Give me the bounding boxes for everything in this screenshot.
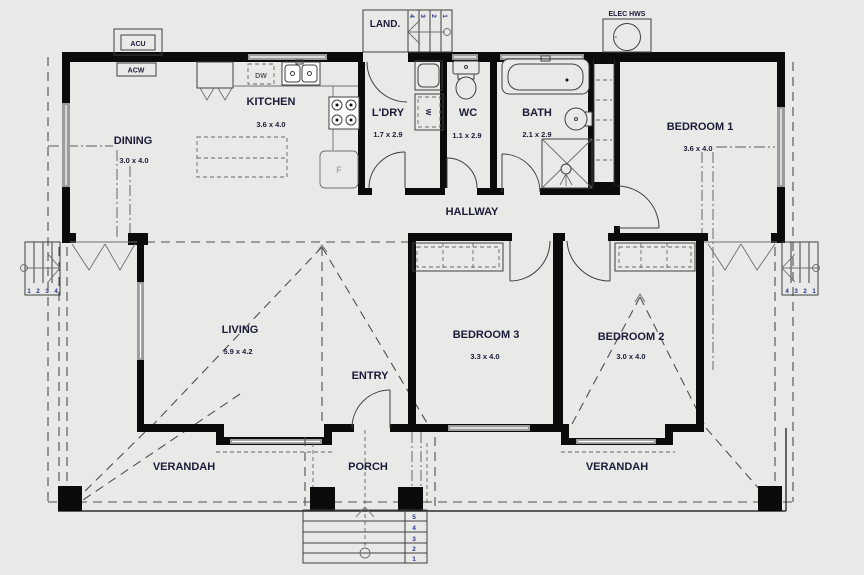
laundry-door xyxy=(369,152,405,188)
bedroom2-size: 3.0 x 4.0 xyxy=(616,352,645,361)
porch-outline xyxy=(216,430,675,548)
rear-step-number: 3 xyxy=(419,14,426,18)
right-steps: 4 3 2 1 xyxy=(782,242,820,295)
bath-door xyxy=(502,154,540,192)
entry-door xyxy=(352,390,390,428)
washing-machine-icon: W xyxy=(415,94,443,130)
kitchen-size: 3.6 x 4.0 xyxy=(256,120,285,129)
laundry-fixtures: W xyxy=(415,61,443,130)
doors xyxy=(70,62,777,428)
right-step-number: 2 xyxy=(803,288,807,295)
toilet-icon xyxy=(453,61,479,99)
landing-label: LAND. xyxy=(370,19,401,30)
rear-landing: LAND. xyxy=(363,10,408,52)
bedroom1-label: BEDROOM 1 xyxy=(667,121,734,133)
rear-step-number: 1 xyxy=(441,14,448,18)
front-step-number: 2 xyxy=(412,546,416,553)
fridge-label: F xyxy=(336,165,342,175)
front-step-number: 3 xyxy=(412,536,416,543)
island-bench xyxy=(197,137,287,177)
right-step-number: 1 xyxy=(812,288,816,295)
bedroom3-label: BEDROOM 3 xyxy=(453,329,520,341)
fridge-icon: F xyxy=(320,151,358,188)
room-labels: DINING 3.0 x 4.0 KITCHEN 3.6 x 4.0 L'DRY… xyxy=(114,73,734,473)
bifold-doors-left xyxy=(70,242,137,270)
dishwasher-label: DW xyxy=(255,73,267,80)
linen-cupboard xyxy=(594,58,614,188)
right-step-number: 3 xyxy=(794,288,798,295)
left-steps: 1 2 3 4 xyxy=(21,242,61,295)
porch-label: PORCH xyxy=(348,461,388,473)
living-size: 5.9 x 4.2 xyxy=(223,347,252,356)
front-step-number: 4 xyxy=(412,525,416,532)
left-step-number: 3 xyxy=(45,288,49,295)
verandah-left-label: VERANDAH xyxy=(153,461,215,473)
pantry-icon xyxy=(197,62,233,100)
laundry-label: L'DRY xyxy=(372,107,405,119)
acu-label: ACU xyxy=(130,41,145,48)
living-label: LIVING xyxy=(222,324,259,336)
sink-icon xyxy=(282,60,320,85)
verandah-right-label: VERANDAH xyxy=(586,461,648,473)
acw-label: ACW xyxy=(128,68,145,75)
laundry-size: 1.7 x 2.9 xyxy=(373,130,402,139)
bathtub-icon xyxy=(502,56,589,94)
wc-door xyxy=(447,158,477,188)
front-step-number: 5 xyxy=(412,514,416,521)
floor-plan-drawing: F W xyxy=(0,0,864,575)
stove-icon xyxy=(329,97,359,129)
bedroom2-door xyxy=(567,241,610,281)
bifold-doors-right xyxy=(704,242,777,270)
dining-label: DINING xyxy=(114,135,153,147)
basin-icon xyxy=(565,108,592,130)
bath-label: BATH xyxy=(522,107,552,119)
left-step-number: 1 xyxy=(27,288,31,295)
right-step-number: 4 xyxy=(785,288,789,295)
hws-label: ELEC HWS xyxy=(609,11,646,18)
hallway-label: HALLWAY xyxy=(446,206,499,218)
rear-step-number: 2 xyxy=(430,14,437,18)
bedroom1-door xyxy=(617,186,659,228)
bedroom3-door xyxy=(510,241,550,281)
acu-unit: ACU xyxy=(114,29,162,55)
wc-label: WC xyxy=(459,107,477,119)
front-step-number: 1 xyxy=(412,556,416,563)
rear-door xyxy=(367,62,407,102)
bedroom3-size: 3.3 x 4.0 xyxy=(470,352,499,361)
bedroom1-size: 3.6 x 4.0 xyxy=(683,144,712,153)
walls xyxy=(62,52,785,445)
bedroom2-label: BEDROOM 2 xyxy=(598,331,665,343)
dining-size: 3.0 x 4.0 xyxy=(119,156,148,165)
laundry-tub-icon xyxy=(415,61,442,90)
left-step-number: 4 xyxy=(54,288,58,295)
bedroom2-robe xyxy=(615,243,695,271)
left-step-number: 2 xyxy=(36,288,40,295)
washer-label: W xyxy=(424,109,431,116)
bedroom3-robe xyxy=(413,243,503,271)
acw-unit: ACW xyxy=(117,63,156,76)
windows xyxy=(62,54,785,444)
hot-water-system-icon: ELEC HWS xyxy=(603,11,651,52)
shower-icon xyxy=(542,139,592,188)
rear-steps: 4 3 2 1 xyxy=(408,10,452,52)
verandah-posts xyxy=(58,486,782,511)
kitchen-label: KITCHEN xyxy=(247,96,296,108)
floor-plan: F W xyxy=(0,0,864,575)
wc-size: 1.1 x 2.9 xyxy=(452,131,481,140)
entry-label: ENTRY xyxy=(352,370,390,382)
rear-step-number: 4 xyxy=(408,14,415,18)
bath-size: 2.1 x 2.9 xyxy=(522,130,551,139)
